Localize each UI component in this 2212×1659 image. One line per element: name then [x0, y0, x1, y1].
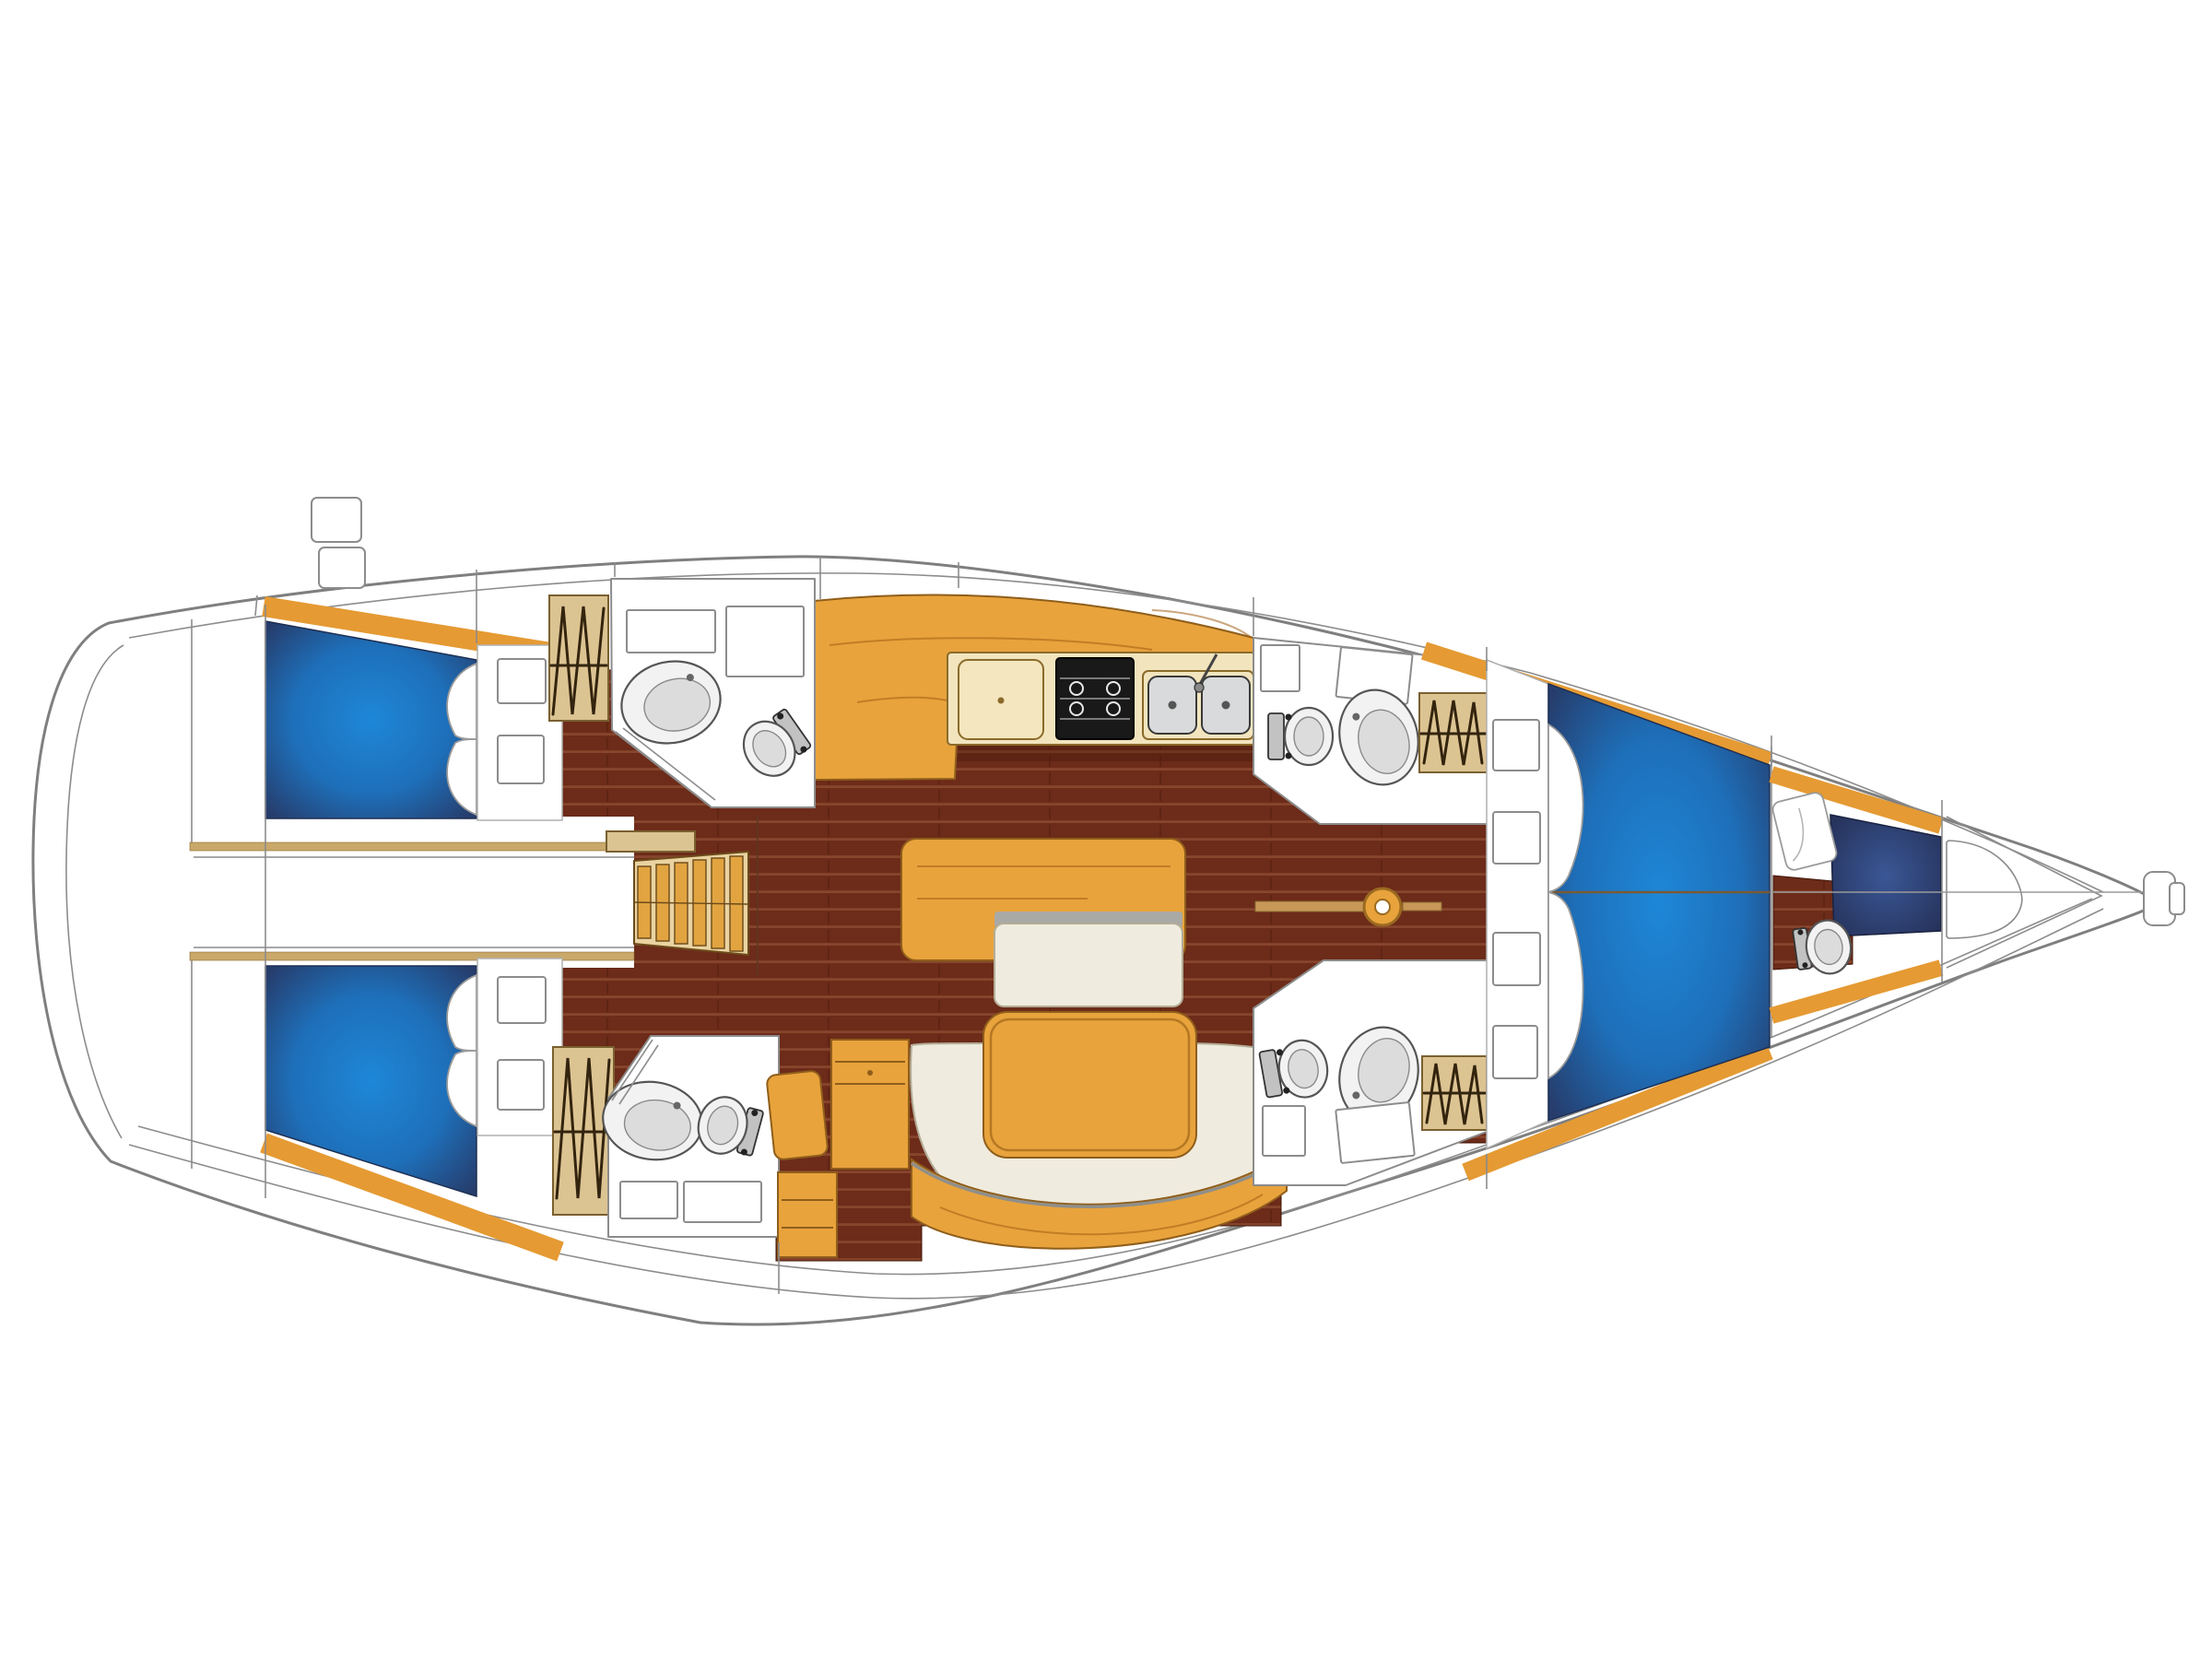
wardrobe-mid-starboard	[1422, 1056, 1487, 1130]
shower-locker	[726, 606, 804, 677]
toilet-seat	[1294, 717, 1324, 756]
drawer-knob	[867, 1070, 873, 1076]
locker-hatch	[684, 1182, 761, 1222]
drain	[1222, 701, 1230, 710]
locker-hatch	[498, 735, 544, 783]
deck-hatch	[312, 498, 361, 542]
stove	[1056, 658, 1134, 739]
crew-berth	[1830, 815, 1941, 936]
nav-desk	[831, 1040, 909, 1169]
stern-deck-hatches	[312, 498, 365, 588]
aft-cabin-port	[264, 606, 562, 820]
locker-hatch	[1493, 812, 1540, 864]
bench	[994, 924, 1182, 1006]
drain	[1169, 701, 1177, 710]
drawer-unit	[778, 1172, 837, 1257]
salon-table	[983, 1012, 1196, 1158]
step-landing	[606, 831, 695, 852]
corridor-floor	[190, 848, 634, 957]
locker-hatch	[1261, 645, 1300, 691]
locker-hatch	[1493, 720, 1539, 771]
locker-hatch	[1493, 933, 1540, 985]
nav-seat	[766, 1070, 828, 1160]
toilet-hinge	[1286, 753, 1292, 759]
locker-hatch	[498, 1060, 544, 1110]
fridge-latch	[998, 698, 1005, 704]
toilet-tank	[1268, 713, 1284, 759]
corridor-wall-bottom	[190, 952, 634, 960]
locker-hatch	[1263, 1106, 1305, 1156]
engine-corridor	[190, 842, 634, 960]
wardrobe-aft-port	[549, 595, 608, 721]
keel-beam	[1255, 901, 1366, 912]
shower-grating	[620, 1182, 677, 1218]
toilet-hinge	[1286, 714, 1292, 721]
locker-hatch	[498, 659, 546, 703]
locker-hatch	[1493, 1026, 1537, 1078]
boat-floorplan-svg	[0, 0, 2212, 1659]
toilet	[1268, 708, 1333, 765]
corridor-wall-top	[190, 842, 634, 851]
deck-hatch	[319, 547, 365, 588]
bow-fitting	[2170, 883, 2184, 914]
keel-beam	[1403, 902, 1441, 911]
mast-step-center	[1375, 900, 1390, 914]
wardrobe-mid-port	[1419, 693, 1489, 772]
locker-hatch	[627, 610, 715, 653]
locker-hatch	[498, 977, 546, 1023]
faucet-base	[1194, 683, 1204, 692]
screenshot-canvas	[0, 0, 2212, 1659]
locker-hatch	[1335, 1102, 1415, 1163]
